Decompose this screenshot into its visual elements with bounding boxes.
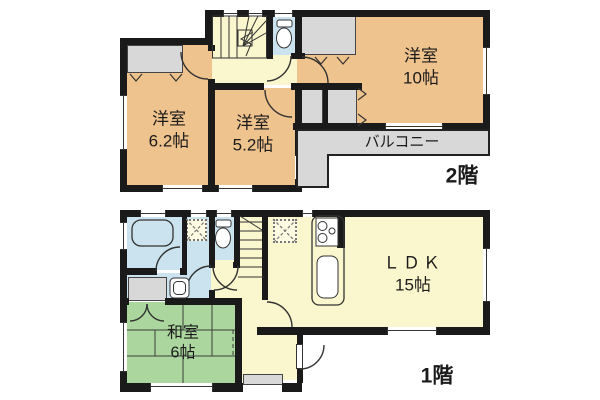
closet-2f-a xyxy=(127,45,183,73)
wall xyxy=(205,10,212,45)
room-size: 6.2帖 xyxy=(149,130,190,152)
wall xyxy=(297,368,303,383)
wall xyxy=(282,383,302,392)
room-label-yoshitsu-6-2: 洋室 6.2帖 xyxy=(149,108,190,152)
room-label-yoshitsu-10: 洋室 10帖 xyxy=(403,45,439,89)
front-door-leaf xyxy=(296,344,303,369)
wall xyxy=(182,217,187,272)
refrigerator-space xyxy=(273,219,297,243)
wall xyxy=(180,268,187,275)
wall xyxy=(127,268,157,275)
room-name: ＬＤＫ xyxy=(383,252,443,274)
window xyxy=(120,95,127,150)
window xyxy=(483,248,490,302)
room-size: 5.2帖 xyxy=(233,134,274,156)
wall xyxy=(295,10,302,57)
room-size: 10帖 xyxy=(403,67,439,89)
toilet-2f-fill xyxy=(271,15,297,55)
wall xyxy=(337,210,345,248)
wall xyxy=(295,180,302,192)
room-10-entry-fill xyxy=(297,53,357,85)
wall xyxy=(120,38,213,45)
room-size: 6帖 xyxy=(167,344,199,364)
room-name: 洋室 xyxy=(403,45,439,67)
window xyxy=(248,10,263,17)
wall xyxy=(208,45,215,51)
vanity-counter xyxy=(128,277,167,301)
window xyxy=(190,210,207,217)
closet-2f-c xyxy=(299,86,323,125)
window xyxy=(216,210,232,217)
window xyxy=(302,210,313,217)
wall xyxy=(235,298,242,392)
wall xyxy=(209,217,215,262)
bathroom-fill xyxy=(125,215,185,270)
wall xyxy=(208,83,264,90)
window xyxy=(140,210,166,217)
wall xyxy=(120,298,129,305)
wall xyxy=(234,210,240,262)
window xyxy=(218,185,253,192)
entrance-fill xyxy=(240,300,298,380)
closet-2f-b xyxy=(299,16,356,55)
closet-2f-d xyxy=(327,86,357,125)
wall xyxy=(267,10,273,59)
room-size: 15帖 xyxy=(383,274,443,296)
wall xyxy=(209,262,215,268)
window xyxy=(483,47,490,95)
wall xyxy=(437,327,490,335)
toilet-1f-fill xyxy=(213,215,235,264)
room-label-washitsu: 和室 6帖 xyxy=(167,324,199,365)
floor-2-label: 2階 xyxy=(446,164,479,191)
room-label-yoshitsu-5-2: 洋室 5.2帖 xyxy=(233,112,274,156)
washing-machine-space xyxy=(186,219,207,241)
wall xyxy=(323,85,328,126)
floor-plan-canvas: 洋室 6.2帖 洋室 5.2帖 洋室 10帖 バルコニー 2階 xyxy=(0,0,600,400)
window xyxy=(150,383,213,392)
room-name: 洋室 xyxy=(233,112,274,134)
wall xyxy=(295,83,302,155)
wall xyxy=(257,327,387,335)
entrance-step xyxy=(243,374,283,385)
balcony-label: バルコニー xyxy=(365,132,440,151)
ldk-fill xyxy=(266,215,485,329)
window xyxy=(385,123,443,130)
wall xyxy=(208,79,215,192)
window xyxy=(295,155,302,180)
window xyxy=(223,10,238,17)
wall xyxy=(262,210,268,300)
window xyxy=(274,10,293,17)
wall xyxy=(165,298,242,305)
window xyxy=(120,222,127,250)
window xyxy=(162,185,203,192)
floor-1-label: 1階 xyxy=(421,364,454,391)
wall xyxy=(233,262,240,268)
window xyxy=(387,327,437,335)
room-name: 和室 xyxy=(167,324,199,344)
room-label-ldk: ＬＤＫ 15帖 xyxy=(383,252,443,296)
room-name: 洋室 xyxy=(149,108,190,130)
window xyxy=(120,322,127,372)
